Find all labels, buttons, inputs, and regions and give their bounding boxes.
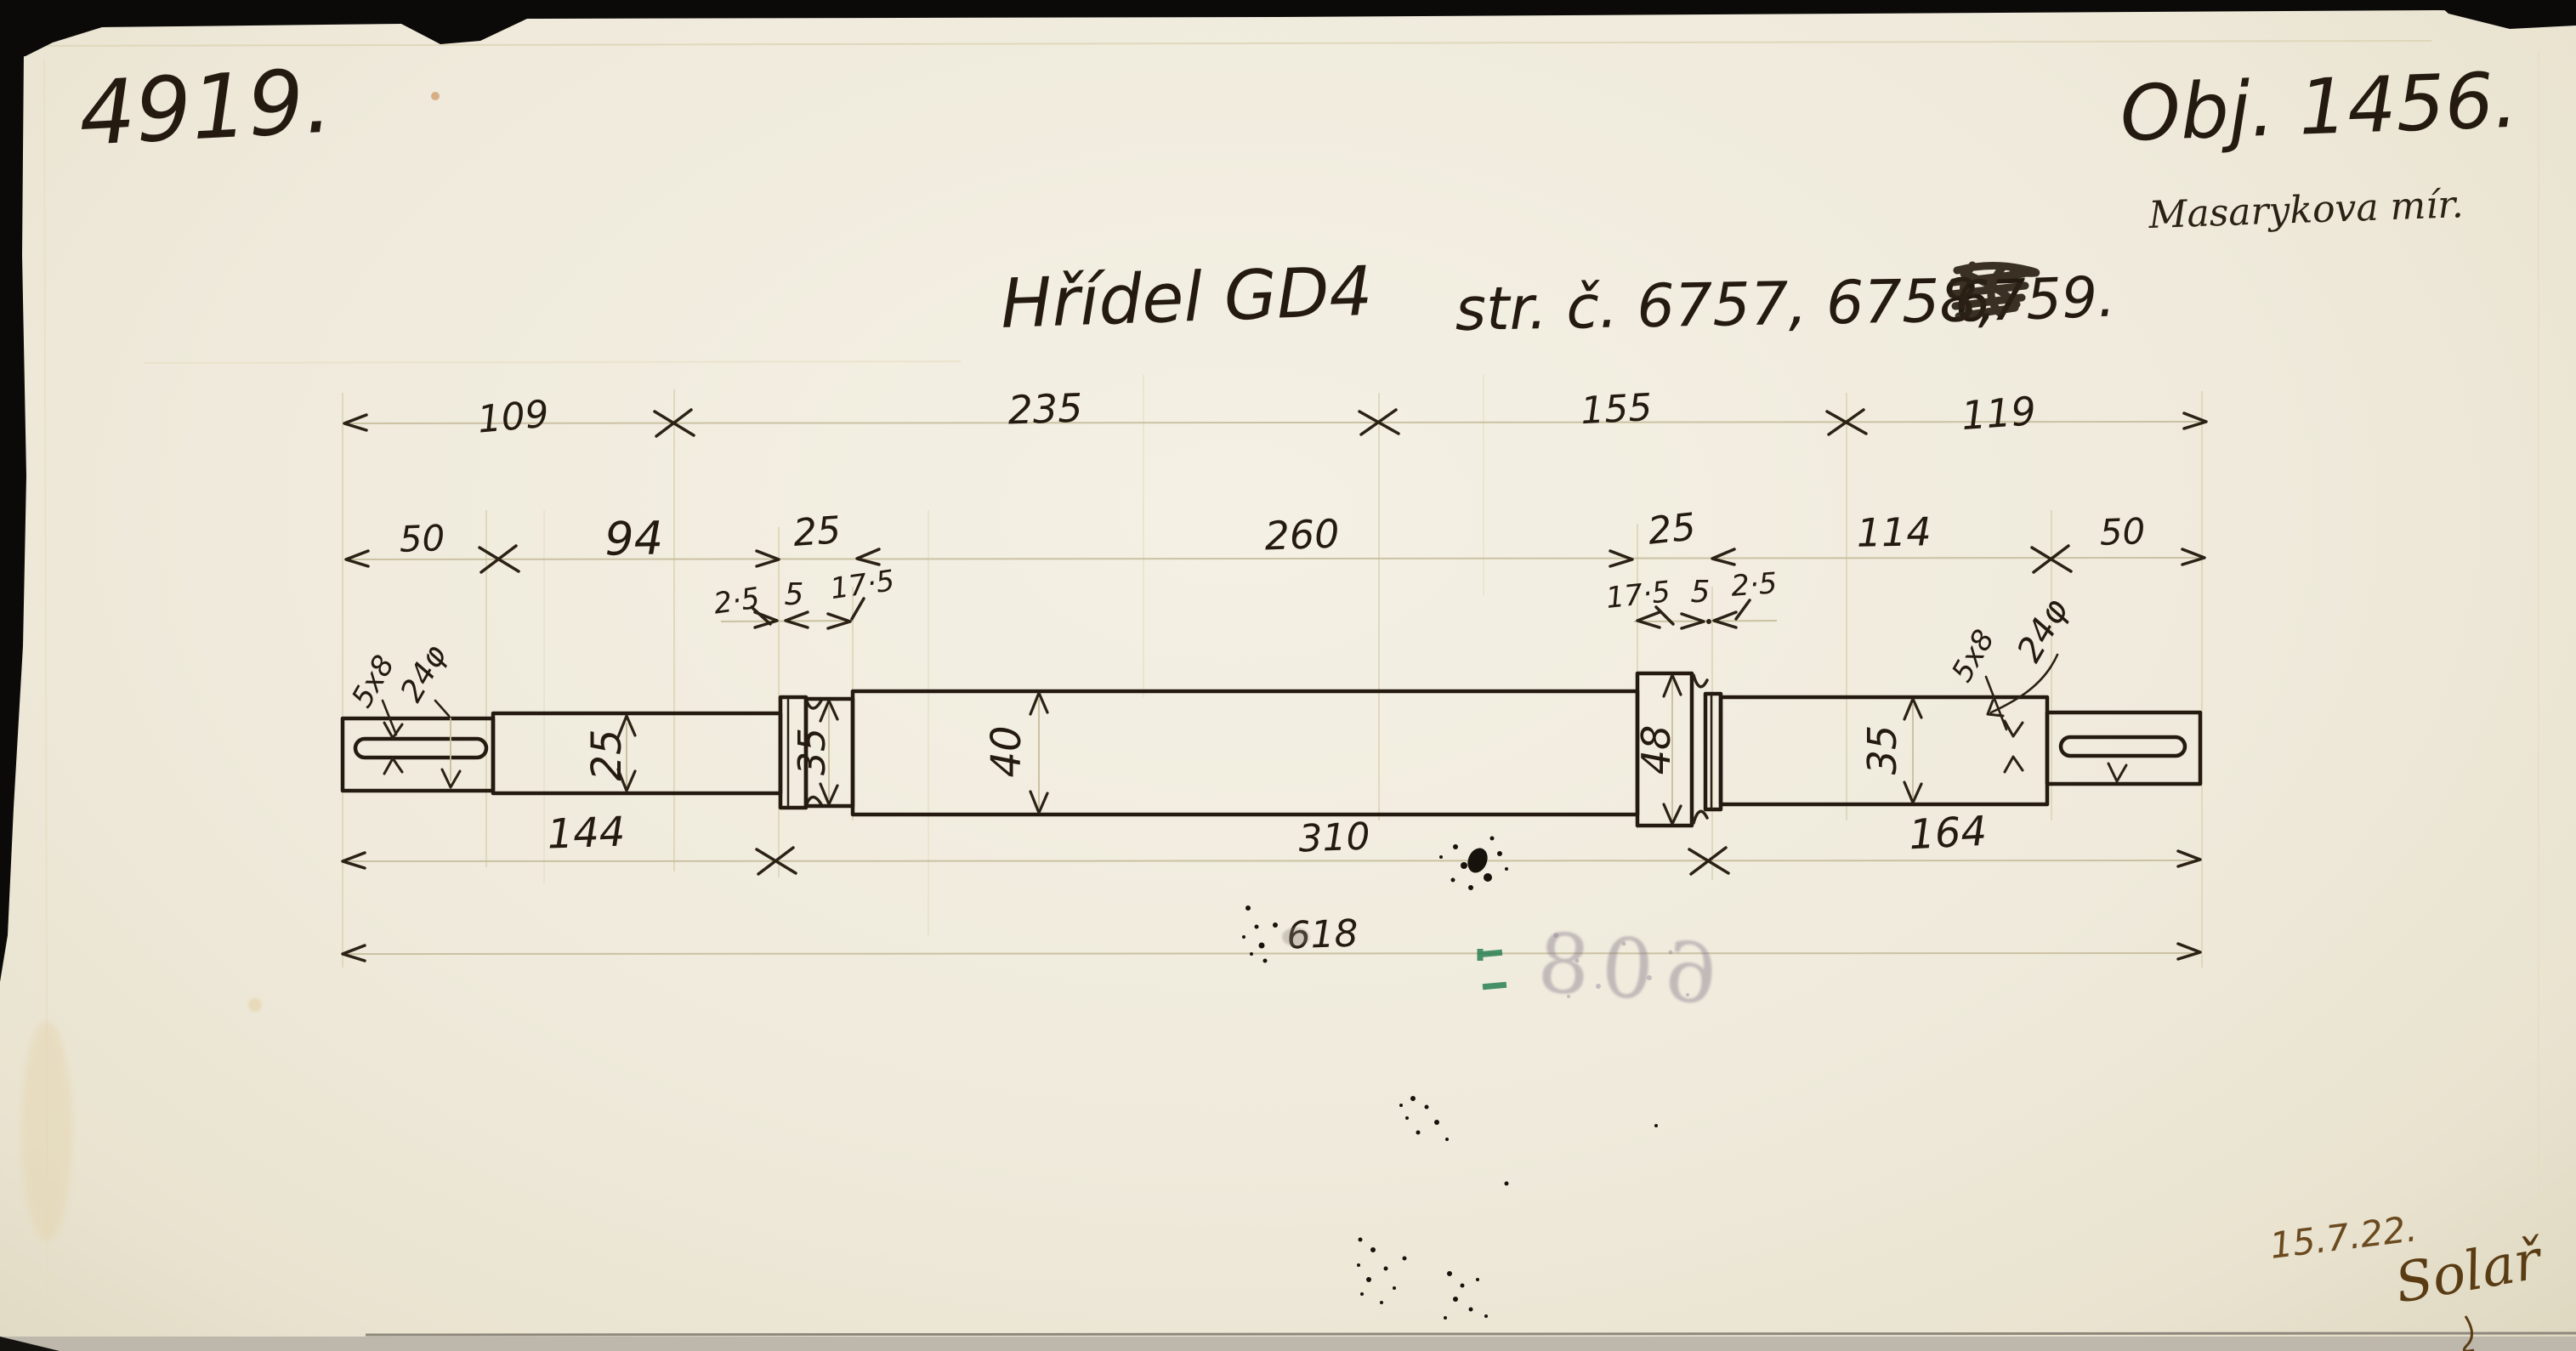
title-block: Hřídel GD4 str. č. 6757, 6758, 6759. — [999, 252, 2116, 344]
scan-left-edge — [0, 34, 26, 982]
keyway-arrows-right — [2005, 721, 2023, 772]
dim-sub-right-2p5: 2·5 — [1730, 566, 1779, 604]
dimension-labels: 109 235 155 119 50 94 25 260 25 114 50 2… — [345, 384, 2146, 957]
dim-sub-right-17p5: 17·5 — [1604, 575, 1671, 616]
end-dia-label-right: 24φ — [2010, 593, 2076, 669]
paper-artifacts — [0, 41, 2576, 1351]
title-refs: str. č. 6757, 6758, — [1455, 265, 1997, 344]
dimension-arrows — [343, 410, 2206, 961]
order-note: Masarykova mír. — [2148, 183, 2465, 237]
end-dia-arrow-right — [2108, 763, 2126, 781]
stamp-and-blots: 608 — [1242, 837, 1721, 1320]
approval-block: 15.7.22. Solař — [2267, 1207, 2549, 1351]
dia-35-right — [1904, 699, 1921, 803]
relief-notch-right-bottom — [1694, 811, 1707, 823]
dia-40 — [1030, 693, 1047, 813]
end-dia-leader-left — [435, 701, 449, 716]
title-main: Hřídel GD4 — [999, 252, 1373, 343]
dia-label-35-left: 35 — [791, 728, 834, 775]
order-number: Obj. 1456. — [2119, 56, 2519, 159]
shaft-section-40 — [853, 691, 1637, 815]
dim-sub-left-17p5: 17·5 — [828, 564, 897, 606]
dim-row2-114: 114 — [1856, 508, 1932, 556]
dia-label-25: 25 — [583, 729, 631, 781]
dim-sub-right-5: 5 — [1691, 575, 1711, 610]
foxing-spot — [431, 92, 440, 100]
ink-splatter — [1242, 837, 1658, 1320]
keyway-label-left: 5x8 — [345, 650, 401, 713]
shaft-section-25 — [493, 713, 780, 793]
dim-row2-94: 94 — [604, 511, 664, 565]
scan-top-edge — [0, 0, 2576, 61]
paper-stain — [21, 1020, 72, 1241]
dim-row2-25-right: 25 — [1646, 505, 1698, 553]
keyway-leader-right — [1986, 677, 2006, 729]
dim-sub-left-2p5: 2·5 — [712, 582, 762, 622]
end-dia-label-left: 24φ — [394, 639, 454, 708]
keyway-slot-left — [355, 739, 486, 758]
smudge — [1282, 928, 1309, 946]
dim-top-235: 235 — [1007, 384, 1084, 433]
scan-bottom-line — [366, 1333, 2576, 1335]
scan-bottom-strip — [0, 1337, 2576, 1351]
mirrored-stamp-number: 608 — [1523, 914, 1720, 1022]
sheet-number: 4919. — [77, 49, 335, 166]
shaft-journal-right — [2047, 712, 2200, 784]
dim-row2-25-left: 25 — [792, 508, 842, 555]
dimension-lines — [343, 422, 2206, 954]
foxing-spot — [248, 998, 262, 1012]
keyway-arrows-left — [384, 723, 402, 774]
dim-row2-260: 260 — [1264, 510, 1341, 559]
dia-label-35-right: 35 — [1859, 725, 1905, 775]
shaft-journal-left — [343, 718, 493, 791]
paper-top-edge — [26, 41, 2431, 46]
header-texts: 4919. Obj. 1456. Masarykova mír. — [77, 49, 2519, 237]
dim-row2-50-right: 50 — [2099, 510, 2146, 553]
drawing-canvas: 4919. Obj. 1456. Masarykova mír. Hřídel … — [0, 0, 2576, 1351]
dim-top-155: 155 — [1580, 386, 1654, 433]
dim-sub-left-5: 5 — [785, 577, 804, 612]
scan-top-right-wedge — [2433, 0, 2576, 29]
extension-lines — [343, 389, 2202, 968]
keyway-label-right: 5x8 — [1945, 624, 2001, 688]
dim-bottom-310: 310 — [1298, 815, 1371, 861]
dim-top-119: 119 — [1960, 388, 2037, 439]
green-mark — [1478, 949, 1506, 987]
dim-top-109: 109 — [476, 392, 551, 441]
scanned-drawing-sheet: 4919. Obj. 1456. Masarykova mír. Hřídel … — [0, 0, 2576, 1351]
dia-label-48: 48 — [1633, 725, 1679, 775]
dim-row2-50-left: 50 — [399, 517, 445, 560]
keyway-slot-right — [2061, 737, 2185, 756]
dim-bottom-144: 144 — [547, 808, 627, 858]
dia-label-40: 40 — [983, 725, 1030, 777]
construction-guides — [145, 361, 1484, 935]
svg-text:608: 608 — [1523, 914, 1720, 1022]
relief-notch-right-top — [1694, 675, 1707, 687]
dim-bottom-164: 164 — [1908, 808, 1988, 860]
